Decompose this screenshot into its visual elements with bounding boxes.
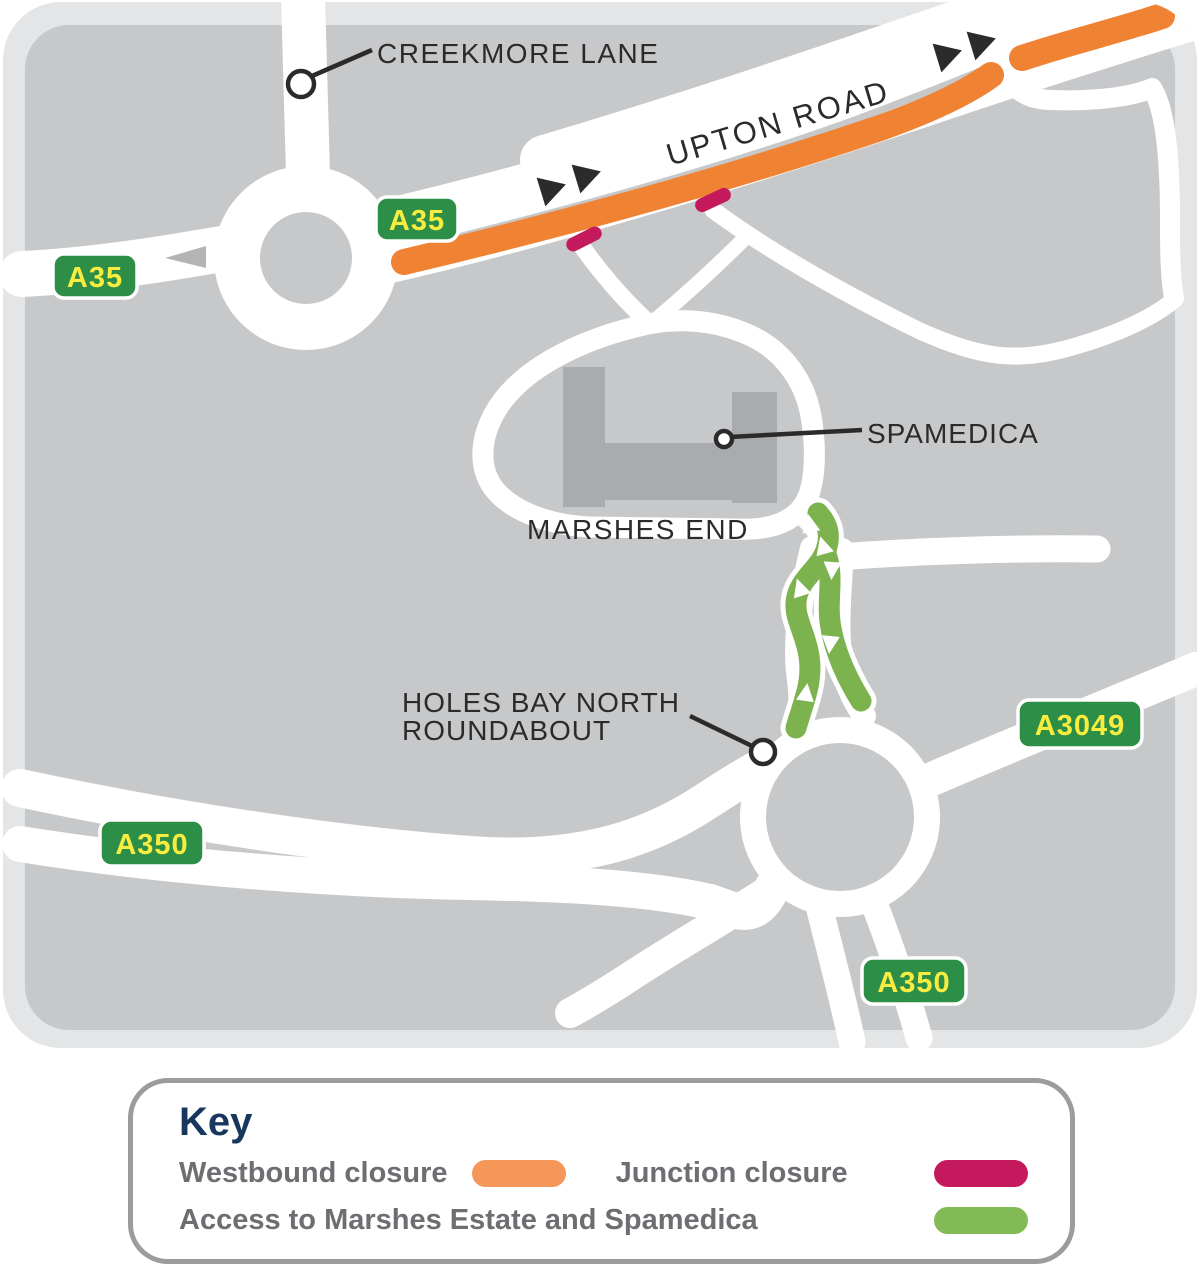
spamedica-callout-marker xyxy=(716,431,732,447)
holes-bay-label-line2: ROUNDABOUT xyxy=(402,715,611,746)
a3049-badge: A3049 xyxy=(1018,700,1142,748)
key-swatch-westbound-closure xyxy=(472,1160,566,1187)
key-label-westbound-closure: Westbound closure xyxy=(179,1157,448,1190)
key-title: Key xyxy=(179,1101,1028,1143)
svg-text:A3049: A3049 xyxy=(1035,710,1125,742)
holes-bay-callout-marker xyxy=(751,740,775,764)
a35-badge-upton: A35 xyxy=(376,197,458,241)
key-row-2: Access to Marshes Estate and Spamedica xyxy=(179,1204,1028,1237)
a350-badge-west: A350 xyxy=(100,820,204,866)
key-swatch-access-route xyxy=(934,1207,1028,1234)
creekmore-callout-marker xyxy=(288,71,314,97)
estate-stub-road xyxy=(836,549,1097,557)
svg-text:A35: A35 xyxy=(389,205,445,237)
road-closure-map-page: CREEKMORE LANE UPTON ROAD SPAMEDICA MARS… xyxy=(0,0,1200,1276)
key-label-access-route: Access to Marshes Estate and Spamedica xyxy=(179,1204,758,1237)
creekmore-lane-label: CREEKMORE LANE xyxy=(377,38,659,69)
svg-text:A350: A350 xyxy=(877,967,950,999)
key-label-junction-closure: Junction closure xyxy=(616,1157,848,1190)
svg-text:A35: A35 xyxy=(67,262,123,294)
key-swatch-junction-closure xyxy=(934,1160,1028,1187)
map-canvas: CREEKMORE LANE UPTON ROAD SPAMEDICA MARS… xyxy=(0,0,1200,1056)
a350-badge-south: A350 xyxy=(862,958,966,1004)
a35-badge-west: A35 xyxy=(53,254,137,298)
map-key-panel: Key Westbound closure Junction closure A… xyxy=(128,1078,1075,1264)
spamedica-label: SPAMEDICA xyxy=(867,418,1039,449)
holes-bay-roundabout-island xyxy=(766,743,914,891)
marshes-end-label: MARSHES END xyxy=(527,514,749,545)
key-row-1: Westbound closure Junction closure xyxy=(179,1157,1028,1190)
svg-text:A350: A350 xyxy=(115,829,188,861)
holes-bay-label-line1: HOLES BAY NORTH xyxy=(402,687,680,718)
creekmore-roundabout-island xyxy=(260,212,352,304)
